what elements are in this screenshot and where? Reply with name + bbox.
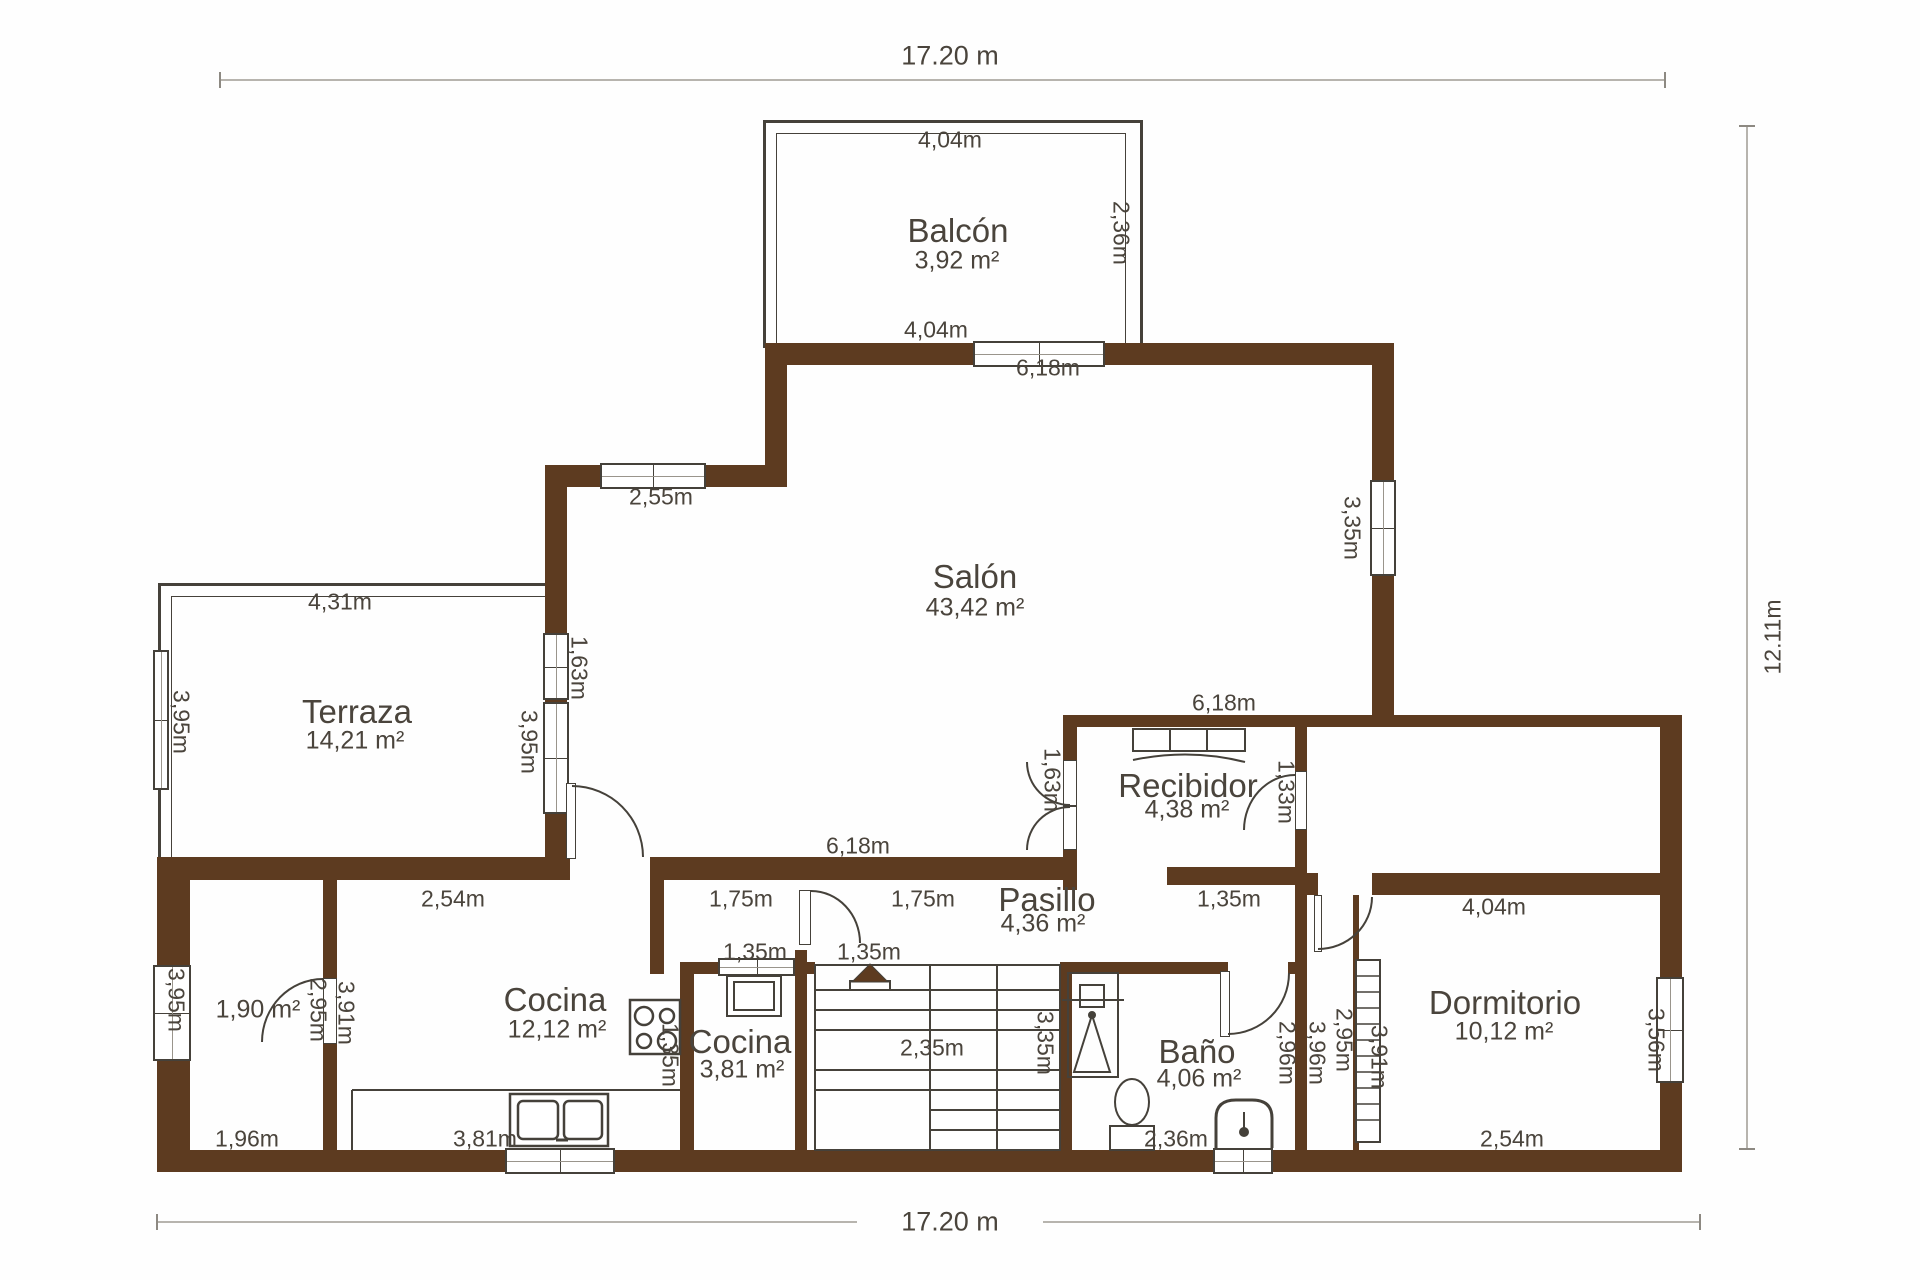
room-name-balcon: Balcón [908,212,1009,250]
dim-label: 1,75m [709,886,773,913]
dim-label: 1,35m [1197,886,1261,913]
dim-label: 3,95m [163,968,190,1032]
dim-label: 3,95m [168,690,195,754]
room-area-cocina-2: 3,81 m² [700,1056,785,1085]
dim-label: 2,55m [629,484,693,511]
stairs-entry-icon [850,964,890,990]
dim-label: 1,63m [1039,748,1066,812]
dim-label: 2,95m [305,978,332,1042]
room-area-pasillo: 4,36 m² [1001,910,1086,939]
dim-label: 1,63m [566,636,593,700]
dim-label: 3,35m [1032,1011,1059,1075]
floor-plan: Balcón3,92 m²Salón43,42 m²Terraza14,21 m… [0,0,1920,1280]
dim-label: 3,91m [1366,1025,1393,1089]
dim-label: 6,18m [1192,690,1256,717]
dim-label: 17.20 m [901,41,999,72]
room-name-salon: Salón [933,558,1017,596]
dim-label: 2,35m [900,1035,964,1062]
room-area-dormitorio: 10,12 m² [1455,1018,1554,1047]
kitchen2-sink [727,976,781,1016]
dim-label: 2,96m [1274,1021,1301,1085]
room-name-cocina: Cocina [504,981,607,1019]
dim-label: 2,95m [1331,1008,1358,1072]
dim-label: 1,35m [723,939,787,966]
dim-label: 3,95m [516,710,543,774]
dim-label: 2,54m [1480,1126,1544,1153]
dim-label: 1,35m [837,939,901,966]
dim-label: 1,75m [891,886,955,913]
dim-label: 2,36m [1108,201,1135,265]
shower [1062,973,1124,1077]
room-area-trastero: 1,90 m² [216,996,301,1025]
dim-label: 4,31m [308,589,372,616]
dim-label: 1,96m [215,1126,279,1153]
dim-label: 3,96m [1304,1021,1331,1085]
dim-label: 2,36m [1144,1126,1208,1153]
dim-label: 3,56m [1643,1008,1670,1072]
dim-label: 3,81m [453,1126,517,1153]
recibidor-wardrobe [1133,729,1245,762]
dim-label: 6,18m [1016,355,1080,382]
dim-label: 2,54m [421,886,485,913]
room-area-bano: 4,06 m² [1157,1065,1242,1094]
dim-label: 1,35m [657,1023,684,1087]
kitchen-sink [510,1094,608,1146]
room-area-balcon: 3,92 m² [915,247,1000,276]
fixtures-layer [0,0,1920,1280]
room-area-recibidor: 4,38 m² [1145,796,1230,825]
room-area-cocina: 12,12 m² [508,1016,607,1045]
room-name-dormitorio: Dormitorio [1429,984,1581,1022]
room-area-terraza: 14,21 m² [306,727,405,756]
dim-label: 3,35m [1339,496,1366,560]
dim-label: 6,18m [826,833,890,860]
dim-label: 4,04m [904,317,968,344]
dim-label: 4,04m [918,127,982,154]
room-name-terraza: Terraza [302,693,412,731]
dim-label: 17.20 m [901,1207,999,1238]
dim-label: 3,91m [333,981,360,1045]
dim-label: 12.11m [1760,599,1787,674]
dim-label: 1,33m [1273,760,1300,824]
dim-label: 4,04m [1462,894,1526,921]
bath-sink [1216,1100,1272,1148]
room-area-salon: 43,42 m² [926,594,1025,623]
